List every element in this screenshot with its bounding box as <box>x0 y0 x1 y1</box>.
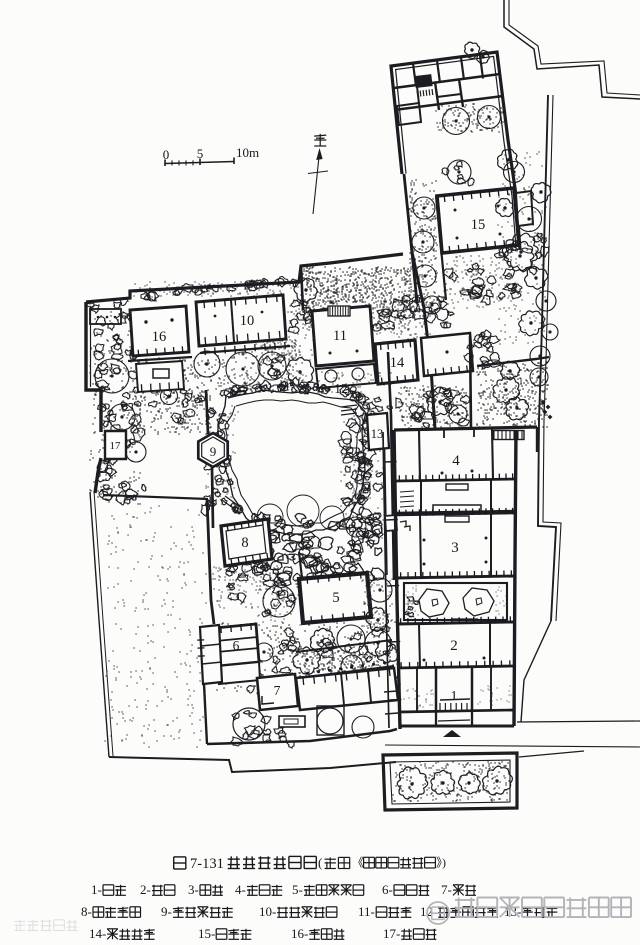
svg-text:14-: 14- <box>89 926 106 941</box>
svg-text:0: 0 <box>163 147 170 162</box>
svg-text:14: 14 <box>390 355 405 371</box>
svg-text:16-: 16- <box>291 926 308 941</box>
svg-text:2: 2 <box>450 638 458 654</box>
svg-text:5: 5 <box>332 590 339 606</box>
svg-text:15-: 15- <box>198 926 215 941</box>
svg-text:4: 4 <box>452 453 460 469</box>
svg-text:10-: 10- <box>259 904 276 919</box>
svg-text:2-: 2- <box>140 882 151 897</box>
svg-text:17: 17 <box>110 440 122 452</box>
svg-text:3: 3 <box>451 540 459 556</box>
svg-text:5-: 5- <box>292 882 303 897</box>
svg-text:10: 10 <box>240 313 255 329</box>
svg-text:11-: 11- <box>358 904 375 919</box>
svg-text:7-: 7- <box>441 882 452 897</box>
svg-text:13: 13 <box>371 427 384 441</box>
svg-text:6: 6 <box>233 638 240 653</box>
svg-text:7-131: 7-131 <box>190 856 224 872</box>
svg-text:17-: 17- <box>383 926 400 941</box>
svg-text:《: 《 <box>352 856 364 870</box>
svg-text:1: 1 <box>451 689 458 704</box>
svg-text:16: 16 <box>152 329 167 345</box>
svg-text:1-: 1- <box>91 882 102 897</box>
svg-text:9: 9 <box>210 444 217 459</box>
svg-text:7: 7 <box>274 683 281 698</box>
svg-text:15: 15 <box>471 217 486 233</box>
svg-text:8: 8 <box>241 535 248 551</box>
svg-text:10m: 10m <box>236 145 259 160</box>
svg-text:4-: 4- <box>235 882 246 897</box>
svg-text:3-: 3- <box>188 882 199 897</box>
svg-text:8-: 8- <box>81 904 92 919</box>
svg-text:9-: 9- <box>161 904 172 919</box>
svg-text:》): 》) <box>436 856 446 870</box>
svg-text:11: 11 <box>333 328 347 344</box>
svg-text:(: ( <box>318 855 322 870</box>
svg-text:6-: 6- <box>382 882 393 897</box>
